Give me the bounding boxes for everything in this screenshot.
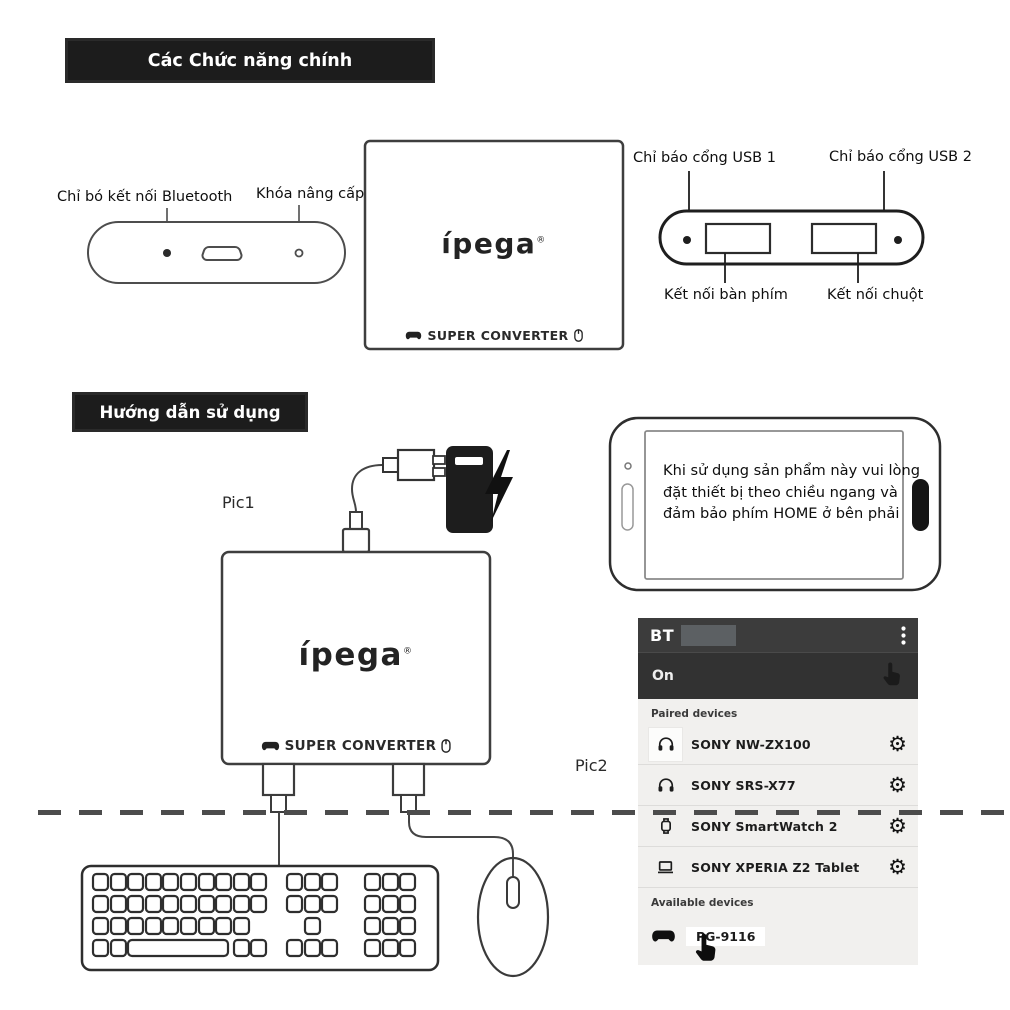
headphones-icon [649, 769, 682, 802]
tablet-icon [649, 851, 682, 884]
available-device-row[interactable]: PG-9116 [638, 913, 918, 959]
converter-box-drawing [222, 552, 513, 867]
mouse-icon [574, 329, 583, 342]
usb1-led-dot [683, 236, 691, 244]
dashed-divider-line [38, 810, 1008, 815]
device-name: SONY NW-ZX100 [691, 737, 811, 752]
mouse-drawing [478, 858, 548, 976]
usb-plug-body [398, 450, 434, 480]
keyboard-port-label: Kết nối bàn phím [664, 287, 788, 303]
usb2-led-dot [894, 236, 902, 244]
gear-icon[interactable]: ⚙ [888, 857, 907, 878]
redacted-title-area [681, 625, 736, 646]
bt-panel-bottom-padding [638, 959, 918, 965]
device-name: SONY SmartWatch 2 [691, 819, 838, 834]
mouse-usb-plug [393, 764, 424, 795]
micro-usb-port-shape [202, 247, 241, 260]
device-bottom-view-drawing [88, 205, 345, 283]
tap-hand-icon [880, 661, 904, 692]
gamepad-icon [649, 920, 677, 953]
usb1-indicator-label: Chỉ báo cổng USB 1 [633, 150, 776, 166]
mouse-port-label: Kết nối chuột [827, 287, 923, 303]
paired-device-row[interactable]: SONY XPERIA Z2 Tablet ⚙ [638, 847, 918, 888]
ipega-logo-text: ípega [441, 227, 536, 260]
bluetooth-indicator-label: Chỉ bó kết nối Bluetooth [57, 189, 232, 205]
pic1-label: Pic1 [222, 493, 255, 512]
keyboard-drawing [82, 866, 438, 970]
gamepad-icon [405, 330, 422, 341]
device-name: SONY SRS-X77 [691, 778, 796, 793]
mouse-wheel [507, 877, 519, 908]
spacebar-key [128, 940, 228, 956]
bt-state-label: On [652, 668, 674, 684]
usb-port-2-shape [812, 224, 876, 253]
kebab-menu-icon[interactable] [901, 626, 906, 645]
registered-mark: ® [403, 647, 414, 657]
bluetooth-led-dot [163, 249, 171, 257]
tap-hand-icon [692, 932, 720, 968]
power-connection-drawing [343, 446, 513, 552]
ipega-logo: ípega® [222, 637, 490, 673]
usb-port-1-shape [706, 224, 770, 253]
gamepad-icon [261, 740, 280, 752]
device-front-view-drawing [660, 171, 923, 283]
bt-toggle-row[interactable]: On [638, 652, 918, 699]
upgrade-key-label: Khóa nâng cấp [256, 186, 364, 202]
manual-page: Các Chức năng chính Chỉ bó kết nối Bluet… [0, 0, 1010, 1010]
ipega-logo: ípega® [365, 227, 623, 260]
bt-header-bar: BT [638, 618, 918, 652]
ipega-logo-text: ípega [299, 637, 403, 673]
usb-plug-neck [383, 458, 399, 472]
paired-device-row[interactable]: SONY NW-ZX100 ⚙ [638, 724, 918, 765]
gear-icon[interactable]: ⚙ [888, 734, 907, 755]
banner-text: Hướng dẫn sử dụng [99, 403, 280, 422]
phone-orientation-note: Khi sử dụng sản phẩm này vui lòng đặt th… [663, 460, 921, 525]
section-banner-usage-guide: Hướng dẫn sử dụng [72, 392, 308, 432]
paired-devices-header: Paired devices [638, 699, 918, 724]
section-banner-main-functions: Các Chức năng chính [65, 38, 435, 83]
paired-device-row[interactable]: SONY SRS-X77 ⚙ [638, 765, 918, 806]
headphones-icon [649, 728, 682, 761]
super-converter-branding: SUPER CONVERTER [222, 738, 490, 754]
banner-text: Các Chức năng chính [148, 51, 352, 71]
super-converter-branding: SUPER CONVERTER [365, 328, 623, 343]
registered-mark: ® [536, 236, 547, 246]
keyboard-usb-plug [263, 764, 294, 795]
usb2-indicator-label: Chỉ báo cổng USB 2 [829, 149, 972, 165]
upgrade-key-dot [296, 250, 303, 257]
bluetooth-settings-panel: BT On Paired devices SONY NW-ZX100 ⚙ SON [638, 618, 918, 965]
available-devices-header: Available devices [638, 888, 918, 913]
mouse-icon [441, 739, 451, 753]
pic2-label: Pic2 [575, 756, 608, 775]
gear-icon[interactable]: ⚙ [888, 775, 907, 796]
device-name: SONY XPERIA Z2 Tablet [691, 860, 859, 875]
bt-title: BT [650, 626, 674, 645]
gear-icon[interactable]: ⚙ [888, 816, 907, 837]
